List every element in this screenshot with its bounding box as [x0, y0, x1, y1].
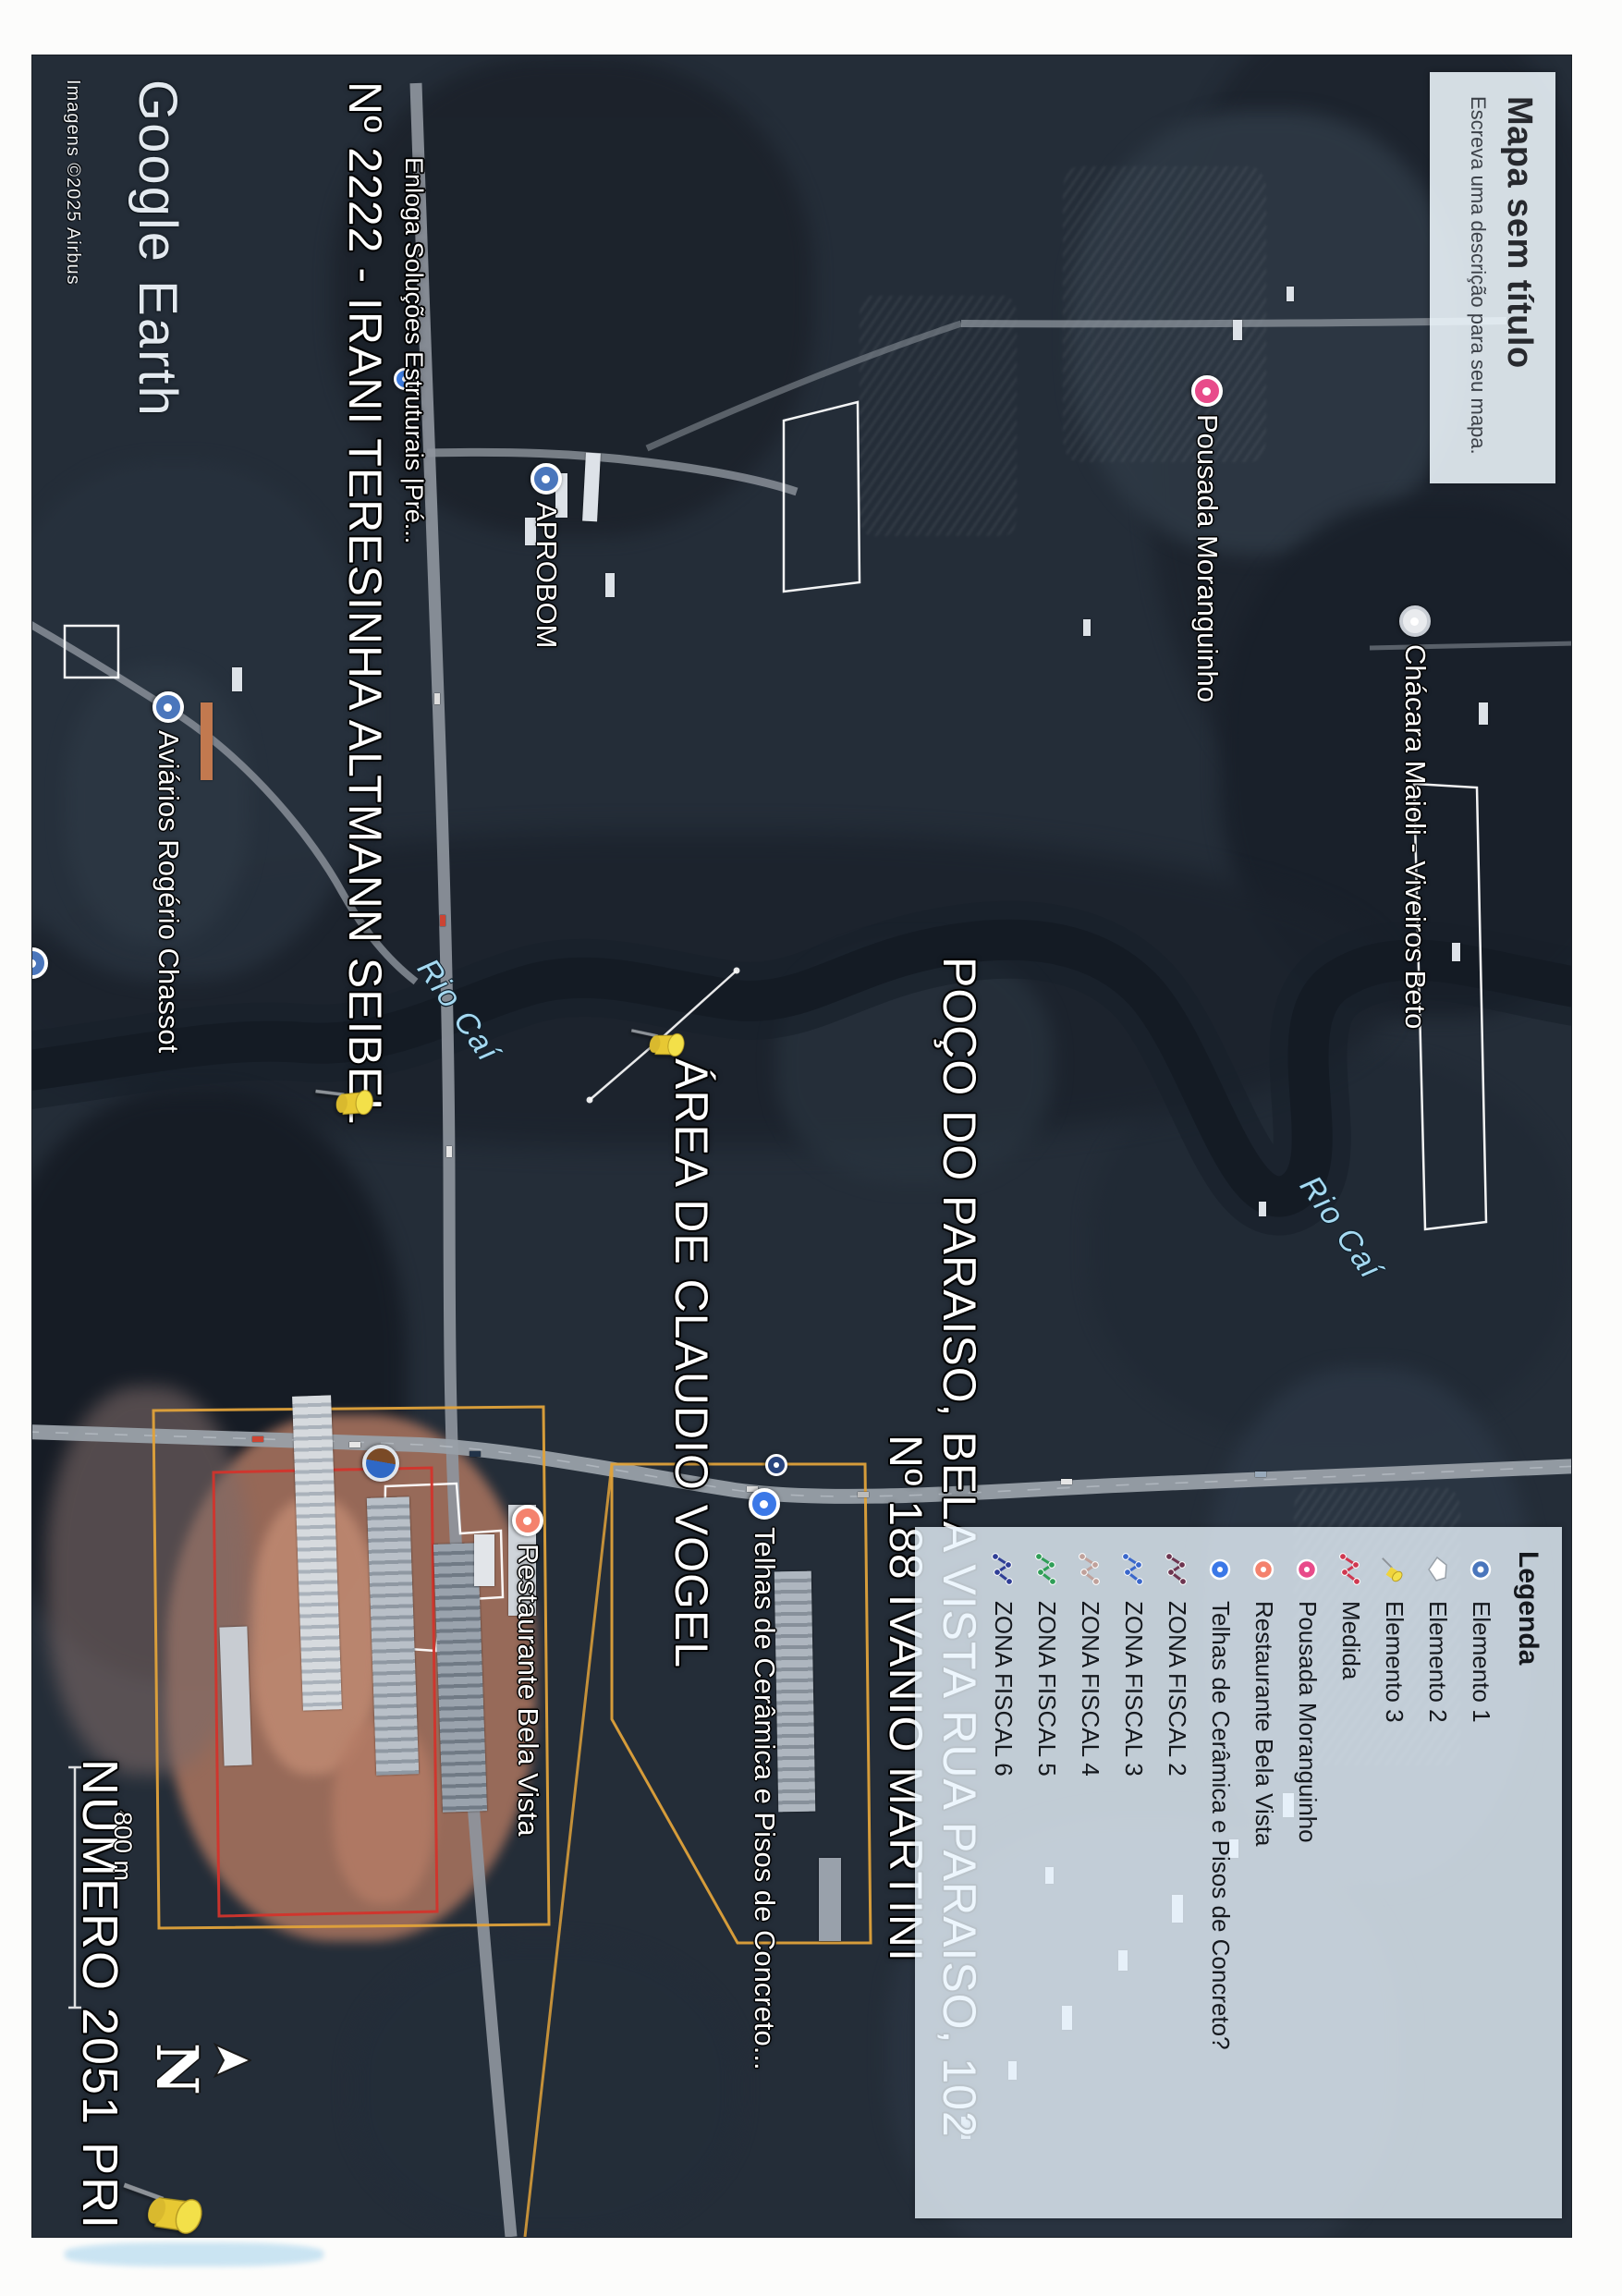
place-pin-icon[interactable]: [1191, 375, 1223, 407]
photo-pin-icon[interactable]: [362, 1445, 399, 1482]
legend-item-elemento-2[interactable]: Elemento 2: [1416, 1551, 1459, 2194]
legend-item-pousada[interactable]: Pousada Moranguinho: [1286, 1551, 1329, 2194]
legend-panel: Legenda Elemento 1 Elemento 2 Elemento 3…: [915, 1527, 1562, 2218]
polyline-icon: [991, 1551, 1017, 1588]
polyline-icon: [1078, 1551, 1104, 1588]
imagery-attribution: Imagens ©2025 Airbus: [62, 79, 83, 286]
road-branch-1: [427, 452, 797, 492]
poi-label: Telhas de Cerâmica e Pisos de Concreto..…: [748, 1527, 781, 2070]
legend-item-elemento-3[interactable]: Elemento 3: [1372, 1551, 1416, 2194]
legend-item-zona-fiscal-4[interactable]: ZONA FISCAL 4: [1068, 1551, 1112, 2194]
road-secondary: [416, 83, 511, 2237]
poi-label: Restaurante Bela Vista: [511, 1544, 544, 1837]
legend-item-zona-fiscal-6[interactable]: ZONA FISCAL 6: [982, 1551, 1025, 2194]
google-earth-logo: Google Earth: [127, 79, 189, 418]
place-icon: [1251, 1551, 1277, 1588]
place-icon: [1295, 1551, 1321, 1588]
legend-header: Legenda: [1512, 1551, 1543, 2194]
poi-telhas-ceramica[interactable]: Telhas de Cerâmica e Pisos de Concreto..…: [748, 1488, 781, 2070]
place-pin-icon[interactable]: [749, 1488, 780, 1520]
map-title-box: Mapa sem título Escreva uma descrição pa…: [1430, 72, 1555, 483]
polyline-icon: [1165, 1551, 1190, 1588]
north-arrow-icon: [213, 2039, 251, 2082]
label-seibel: Nº 2222 - IRANI TERESINHA ALTMANN SEIBEL: [338, 81, 392, 1125]
place-pin-icon[interactable]: [512, 1505, 543, 1536]
north-letter: N: [143, 2043, 211, 2095]
place-pin-icon[interactable]: [531, 463, 562, 495]
polyline-icon: [1121, 1551, 1147, 1588]
map-description-placeholder[interactable]: Escreva uma descrição para seu mapa.: [1466, 96, 1490, 459]
poi-restaurante-bela-vista[interactable]: Restaurante Bela Vista: [511, 1505, 544, 1837]
place-pin-icon[interactable]: [152, 691, 184, 723]
polyline-icon: [1034, 1551, 1060, 1588]
legend-item-telhas[interactable]: Telhas de Cerâmica e Pisos de Concreto?: [1199, 1551, 1242, 2194]
legend-item-elemento-1[interactable]: Elemento 1: [1459, 1551, 1503, 2194]
polygon-icon: [1426, 1551, 1450, 1588]
scanned-map-page: { "page": { "logo": "Google Earth", "att…: [0, 0, 1622, 2296]
legend-item-zona-fiscal-2[interactable]: ZONA FISCAL 2: [1155, 1551, 1199, 2194]
label-area-claudio-vogel: ÁREA DE CLAUDIO VOGEL: [665, 1058, 718, 1668]
poi-pousada-moranguinho[interactable]: Pousada Moranguinho: [1190, 375, 1224, 702]
scale-label: 800 m: [108, 1812, 137, 1881]
poi-aprobom[interactable]: APROBOM: [530, 463, 563, 648]
poi-aviarios-rogerio-chassot[interactable]: Aviários Rogério Chassot: [152, 691, 185, 1053]
legend-item-zona-fiscal-3[interactable]: ZONA FISCAL 3: [1112, 1551, 1155, 2194]
map-title[interactable]: Mapa sem título: [1499, 96, 1539, 459]
circle-pin-icon: [1469, 1551, 1494, 1588]
map-canvas[interactable]: Nº 2222 - IRANI TERESINHA ALTMANN SEIBEL…: [32, 55, 1571, 2237]
poi-chacara-maioli[interactable]: Chácara Maioli - Viveiros Beto: [1398, 605, 1432, 1029]
pushpin-icon: [1381, 1551, 1409, 1588]
scan-artifact: [65, 2242, 323, 2266]
poi-label: Aviários Rogério Chassot: [152, 730, 185, 1053]
poi-label: Pousada Moranguinho: [1190, 414, 1224, 702]
poi-dark-pin[interactable]: [765, 1454, 787, 1476]
legend-item-medida[interactable]: Medida: [1329, 1551, 1372, 2194]
polyline-icon: [1338, 1551, 1364, 1588]
poi-label: Chácara Maioli - Viveiros Beto: [1398, 644, 1432, 1029]
place-icon: [1208, 1551, 1234, 1588]
poi-label: APROBOM: [530, 502, 563, 648]
road-branch-3: [647, 324, 961, 448]
place-pin-icon[interactable]: [1399, 605, 1431, 637]
label-enloga: Enloga Soluções Estruturais |Pré...: [399, 157, 428, 543]
elemento2-polygon-a: [784, 402, 860, 592]
legend-item-restaurante[interactable]: Restaurante Bela Vista: [1242, 1551, 1286, 2194]
legend-item-zona-fiscal-5[interactable]: ZONA FISCAL 5: [1025, 1551, 1068, 2194]
